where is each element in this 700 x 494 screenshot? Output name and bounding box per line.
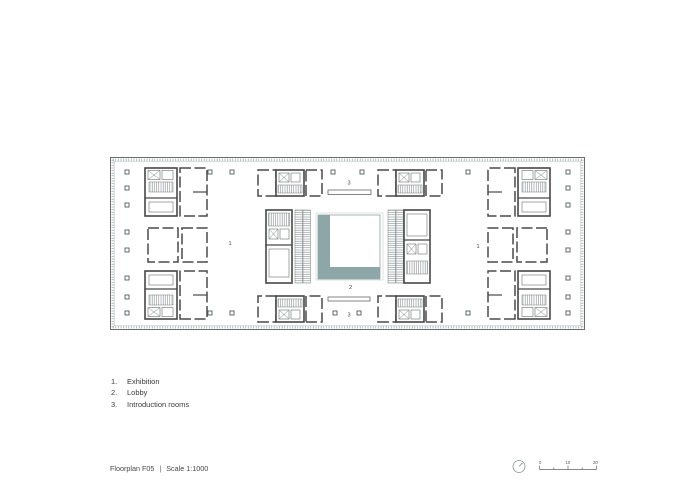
plan-label-lobby: 2 <box>349 285 352 291</box>
legend-item: 2. Lobby <box>111 387 189 398</box>
legend-number: 1. <box>111 376 127 387</box>
core-center-right <box>388 210 430 283</box>
legend-number: 2. <box>111 387 127 398</box>
scale-text: Scale 1:1000 <box>166 464 208 473</box>
sheet-title-text: Floorplan F05 <box>110 464 154 473</box>
sheet-title: Floorplan F05|Scale 1:1000 <box>110 464 208 473</box>
plan-label-exhibition-left: 1 <box>229 241 232 247</box>
legend-label: Exhibition <box>127 376 160 387</box>
legend-label: Introduction rooms <box>127 399 189 410</box>
legend: 1. Exhibition 2. Lobby 3. Introduction r… <box>111 376 189 410</box>
scale-bar: 0 10 20 <box>539 459 601 472</box>
plan-label-introduction-bottom: 3 <box>348 313 351 319</box>
core-center-left <box>266 210 311 283</box>
bench-top <box>328 190 371 195</box>
escalator-left <box>295 210 303 283</box>
drawing-sheet: 1 1 2 3 3 1. Exhibition 2. Lobby 3. Intr… <box>0 0 700 494</box>
floorplan-drawing: 1 1 2 3 3 <box>110 157 585 330</box>
escalator-right <box>388 210 396 283</box>
title-separator: | <box>159 464 161 473</box>
scale-tick-label: 20 <box>593 460 598 465</box>
bench-bottom <box>328 297 370 301</box>
legend-label: Lobby <box>127 387 147 398</box>
plan-label-exhibition-right: 1 <box>477 244 480 250</box>
plan-label-introduction-top: 3 <box>348 181 351 187</box>
scale-tick-label: 10 <box>566 460 571 465</box>
legend-number: 3. <box>111 399 127 410</box>
north-indicator-icon <box>511 458 527 474</box>
atrium <box>316 213 383 280</box>
legend-item: 3. Introduction rooms <box>111 399 189 410</box>
scale-tick-label: 0 <box>539 460 542 465</box>
legend-item: 1. Exhibition <box>111 376 189 387</box>
